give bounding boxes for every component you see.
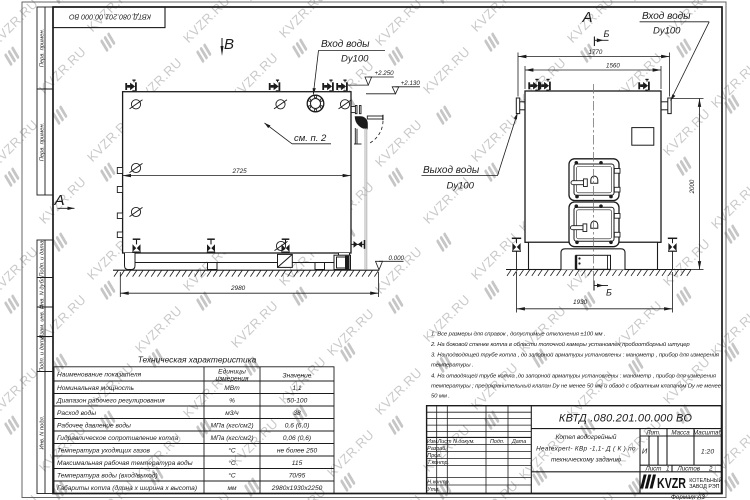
svg-text:Утв.: Утв. (426, 487, 439, 493)
svg-text:МПа (кгс/см2): МПа (кгс/см2) (210, 435, 253, 442)
svg-text:Подп. и дата: Подп. и дата (40, 240, 46, 277)
svg-text:температуры .: температуры . (431, 363, 474, 369)
svg-text:Единицы: Единицы (218, 368, 246, 376)
svg-text:Dy100: Dy100 (653, 26, 681, 37)
svg-text:°С: °С (228, 459, 236, 467)
svg-text:+2.250: +2.250 (375, 70, 395, 77)
svg-text:2: 2 (708, 465, 713, 472)
svg-text:N докум.: N докум. (453, 439, 475, 445)
svg-text:КВТД.080.201.00.000 ВО: КВТД.080.201.00.000 ВО (69, 12, 151, 21)
svg-text:°С: °С (228, 447, 236, 455)
svg-text:2. На боковой стенке котла в: 2. На боковой стенке котла в области топ… (430, 341, 690, 348)
svg-text:мм: мм (227, 485, 237, 492)
svg-text:Дата: Дата (511, 439, 526, 445)
svg-text:Лит.: Лит. (645, 429, 661, 436)
svg-text:Dy100: Dy100 (447, 181, 475, 192)
svg-text:Пров.: Пров. (427, 453, 441, 459)
svg-text:Подп. и дата: Подп. и дата (40, 335, 46, 372)
svg-text:1770: 1770 (589, 49, 603, 56)
svg-text:KVZR: KVZR (657, 475, 686, 492)
svg-text:А: А (582, 9, 593, 26)
svg-text:техническому заданию: техническому заданию (551, 456, 621, 464)
svg-text:Dy100: Dy100 (341, 54, 369, 65)
svg-text:4. На отводящей трубе котла ,: 4. На отводящей трубе котла ,до запорной… (431, 373, 717, 380)
svg-text:Инв. N подл.: Инв. N подл. (40, 416, 46, 450)
svg-text:Номинальная мощность: Номинальная мощность (57, 385, 135, 392)
svg-text:Н.контр.: Н.контр. (427, 479, 450, 485)
svg-text:КВТД .080.201.00.000 ВО: КВТД .080.201.00.000 ВО (559, 413, 692, 425)
svg-text:Листов: Листов (677, 465, 701, 472)
svg-text:Лист: Лист (645, 465, 662, 472)
svg-text:МВт: МВт (224, 385, 240, 392)
svg-text:1: 1 (666, 465, 669, 472)
svg-text:И: И (642, 447, 648, 456)
svg-text:50 мм .: 50 мм . (431, 394, 450, 400)
svg-text:Масштаб: Масштаб (693, 429, 722, 436)
svg-text:1:20: 1:20 (701, 449, 714, 456)
svg-text:Габариты котла (длина х ширина: Габариты котла (длина х ширина х высота) (57, 484, 197, 492)
svg-text:%: % (229, 398, 235, 405)
svg-text:Перв. примен.: Перв. примен. (40, 123, 46, 162)
svg-text:1. Все размеры для справок ,: 1. Все размеры для справок , допустимые … (431, 332, 606, 338)
svg-text:Котел водогрейный: Котел водогрейный (556, 433, 617, 441)
svg-text:не более 250: не более 250 (277, 447, 318, 455)
svg-text:50-100: 50-100 (287, 398, 308, 405)
svg-text:Разраб.: Разраб. (427, 446, 447, 452)
svg-text:Температура уходящих газов: Температура уходящих газов (57, 447, 150, 455)
svg-text:Heatexpert- КВр -1,1- Д ( К ): Heatexpert- КВр -1,1- Д ( К ) по (536, 446, 636, 453)
svg-text:2000: 2000 (689, 179, 696, 194)
svg-text:Взам. инв. N: Взам. инв. N (40, 304, 46, 339)
svg-text:Инв. N дубл.: Инв. N дубл. (40, 275, 46, 309)
svg-text:Наименование показателя: Наименование показателя (57, 372, 142, 379)
svg-text:Перв. примен.: Перв. примен. (40, 29, 46, 68)
svg-text:1,1: 1,1 (292, 385, 301, 392)
svg-text:Подп.: Подп. (490, 439, 504, 445)
svg-text:+2.130: +2.130 (401, 80, 421, 87)
svg-text:А: А (54, 192, 65, 209)
svg-text:Вход воды: Вход воды (642, 11, 691, 22)
svg-text:2725: 2725 (232, 168, 248, 175)
svg-text:3. На подводящей трубе котла: 3. На подводящей трубе котла , до запорн… (431, 352, 720, 359)
svg-text:Б: Б (606, 288, 612, 298)
svg-text:38: 38 (293, 410, 301, 417)
svg-text:МПа (кгс/см2): МПа (кгс/см2) (210, 423, 253, 430)
svg-text:70/95: 70/95 (289, 473, 306, 480)
svg-text:Максимальная рабочая температу: Максимальная рабочая температура воды (57, 459, 193, 467)
svg-text:Формат А3: Формат А3 (671, 494, 705, 500)
svg-text:°С: °С (228, 472, 236, 480)
svg-text:Значение: Значение (283, 373, 312, 380)
svg-text:В: В (224, 36, 234, 53)
svg-text:Диапазон рабочего регулировани: Диапазон рабочего регулирования (56, 397, 165, 405)
svg-text:115: 115 (292, 460, 303, 467)
svg-text:Техническая характеристика: Техническая характеристика (138, 355, 257, 365)
svg-text:Вход воды: Вход воды (321, 39, 370, 50)
svg-text:0.000: 0.000 (389, 255, 405, 262)
svg-text:Лист: Лист (437, 439, 452, 445)
svg-text:см. п. 2: см. п. 2 (294, 133, 327, 144)
svg-text:1930: 1930 (573, 299, 588, 306)
svg-text:Температура воды (вход/выход): Температура воды (вход/выход) (57, 472, 158, 480)
svg-text:Б: Б (604, 29, 610, 39)
svg-text:Рабочее давление воды: Рабочее давление воды (57, 422, 131, 430)
svg-text:Масса: Масса (671, 429, 690, 436)
svg-text:Расход воды: Расход воды (57, 409, 96, 417)
svg-text:0,06 (0,6): 0,06 (0,6) (283, 435, 311, 442)
svg-text:м3/ч: м3/ч (225, 410, 239, 417)
svg-text:ЗАВОД РЭП: ЗАВОД РЭП (689, 484, 719, 490)
svg-text:2980х1930х2250: 2980х1930х2250 (271, 485, 323, 492)
svg-text:Т.контр.: Т.контр. (427, 460, 449, 466)
svg-text:Гидравлическое сопротивление к: Гидравлическое сопротивление котла (57, 434, 178, 442)
svg-text:измерения: измерения (216, 375, 249, 382)
svg-text:температуры ; предохранительны: температуры ; предохранительный клапан D… (431, 383, 722, 390)
svg-text:1560: 1560 (606, 62, 620, 69)
svg-text:КОТЕЛЬНЫЙ: КОТЕЛЬНЫЙ (689, 476, 722, 484)
svg-text:0,6 (6,0): 0,6 (6,0) (285, 423, 310, 430)
svg-text:Выход воды: Выход воды (423, 165, 480, 176)
svg-text:2980: 2980 (230, 285, 246, 292)
